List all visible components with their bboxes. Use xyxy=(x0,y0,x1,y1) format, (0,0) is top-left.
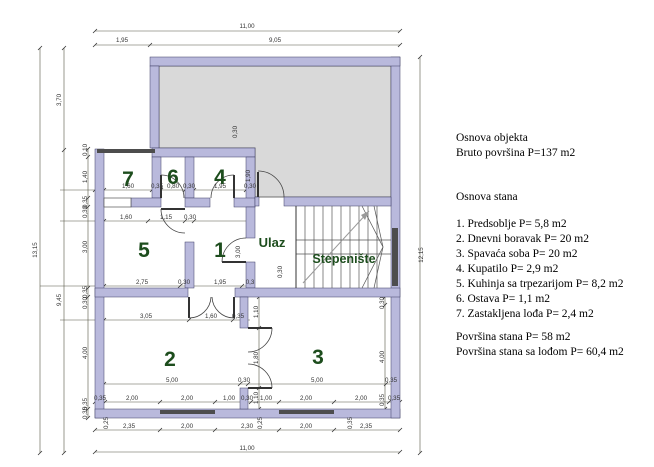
legend-net-area: Površina stana P= 58 m2 xyxy=(456,330,654,345)
dim-label: 2,00 xyxy=(300,423,313,430)
legend-item: 6. Ostava P= 1,1 m2 xyxy=(456,292,654,307)
floor-plan-page: 7 6 4 5 1 2 3 Ulaz Stepenište 11,00 1,95… xyxy=(0,0,654,467)
dim-label: 1,95 xyxy=(214,183,227,190)
stair-window xyxy=(392,228,398,286)
dim-label: 2,75 xyxy=(136,279,149,286)
dim-label: 1,10 xyxy=(253,305,260,318)
legend-gross-area: Bruto površina P=137 m2 xyxy=(456,146,654,161)
dim-label: 1,60 xyxy=(120,214,133,221)
dim-label: 9,05 xyxy=(269,37,282,44)
legend-item: 4. Kupatilo P= 2,9 m2 xyxy=(456,262,654,277)
dim-label: 3,00 xyxy=(235,245,242,258)
legend-item: 1. Predsoblje P= 5,8 m2 xyxy=(456,217,654,232)
dim-label: 0,3 xyxy=(246,279,255,286)
dim-label: 9,45 xyxy=(56,293,63,306)
dim-label: 0,35 xyxy=(82,285,89,298)
dim-label: 1,00 xyxy=(223,395,236,402)
dim-label: 5,00 xyxy=(166,377,179,384)
dim-label: 1,00 xyxy=(260,395,273,402)
loggia-glazing xyxy=(97,149,155,153)
room3-window xyxy=(279,410,334,414)
dim-label: 12,15 xyxy=(418,247,425,263)
dim-label: 0,35 xyxy=(94,395,107,402)
dim-label: 2,35 xyxy=(360,423,373,430)
dim-label: 0,35 xyxy=(232,313,245,320)
dim-label: 0,30 xyxy=(379,296,386,309)
entrance-label: Ulaz xyxy=(259,235,286,250)
dim-label: 3,70 xyxy=(56,93,63,106)
staircase-label: Stepenište xyxy=(312,252,375,266)
dim-label: 13,15 xyxy=(32,242,39,258)
dim-label: 1,60 xyxy=(205,313,218,320)
dim-label: 2,00 xyxy=(355,395,368,402)
dim-label: 0,35 xyxy=(385,377,398,384)
dim-label: 0,25 xyxy=(257,416,264,429)
dim-label: 4,00 xyxy=(82,346,89,359)
dim-label: 2,00 xyxy=(300,395,313,402)
dim-label: 0,35 xyxy=(151,183,164,190)
dim-label: 1,90 xyxy=(245,169,252,182)
dim-label: 0,30 xyxy=(82,296,89,309)
dim-label: 0,30 xyxy=(183,183,196,190)
dim-label: 0,80 xyxy=(167,183,180,190)
dim-label: 2,00 xyxy=(181,395,194,402)
legend-item: 2. Dnevni boravak P= 20 m2 xyxy=(456,232,654,247)
dim-label: 1,95 xyxy=(214,279,227,286)
dim-label: 0,30 xyxy=(277,265,284,278)
dim-label: 0,30 xyxy=(184,214,197,221)
dim-label: 11,00 xyxy=(239,445,255,452)
dim-label: 1,10 xyxy=(253,391,260,404)
stairs xyxy=(296,206,391,288)
legend-item: 7. Zastakljena lođa P= 2,4 m2 xyxy=(456,307,654,322)
dim-label: 1,40 xyxy=(82,170,89,183)
dim-label: 0,35 xyxy=(379,393,386,406)
room-1-number: 1 xyxy=(214,239,226,262)
dim-label: 1,95 xyxy=(116,37,129,44)
legend: Osnova objekta Bruto površina P=137 m2 O… xyxy=(456,131,654,360)
dim-label: 2,30 xyxy=(241,423,254,430)
dim-label: 1,15 xyxy=(160,214,173,221)
loggia-threshold xyxy=(104,198,131,207)
dim-label: 3,00 xyxy=(82,240,89,253)
dim-label: 0,30 xyxy=(82,205,89,218)
dim-label: 11,00 xyxy=(239,23,255,30)
dim-label: 0,35 xyxy=(388,395,401,402)
room-5-number: 5 xyxy=(138,239,150,262)
dim-label: 4,00 xyxy=(379,350,386,363)
legend-item: 5. Kuhinja sa trpezarijom P= 8,2 m2 xyxy=(456,277,654,292)
dim-label: 0,30 xyxy=(244,183,257,190)
dim-label: 1,80 xyxy=(253,351,260,364)
legend-item: 3. Spavaća soba P= 20 m2 xyxy=(456,247,654,262)
legend-net-area-with-loggia: Površina stana sa lođom P= 60,4 m2 xyxy=(456,345,654,360)
dim-label: 0,35 xyxy=(82,406,89,419)
dim-label: 0,30 xyxy=(178,279,191,286)
dim-label: 3,05 xyxy=(140,313,153,320)
dim-label: 0,30 xyxy=(238,377,251,384)
legend-title: Osnova objekta xyxy=(456,131,654,146)
dim-label: 1,60 xyxy=(122,183,135,190)
dim-label: 5,00 xyxy=(311,377,324,384)
legend-section-title: Osnova stana xyxy=(456,190,654,205)
room-3-number: 3 xyxy=(312,346,324,369)
dim-label: 0,35 xyxy=(347,416,354,429)
dim-label: 0,30 xyxy=(241,395,254,402)
dim-label: 0,25 xyxy=(103,416,110,429)
room-2-number: 2 xyxy=(164,348,176,371)
dim-label: 2,00 xyxy=(126,395,139,402)
dim-label: 0,30 xyxy=(232,125,239,138)
dim-label: 0,10 xyxy=(82,143,89,156)
room2-window xyxy=(160,410,215,414)
dim-label: 2,00 xyxy=(181,423,194,430)
dim-label: 2,35 xyxy=(123,423,136,430)
